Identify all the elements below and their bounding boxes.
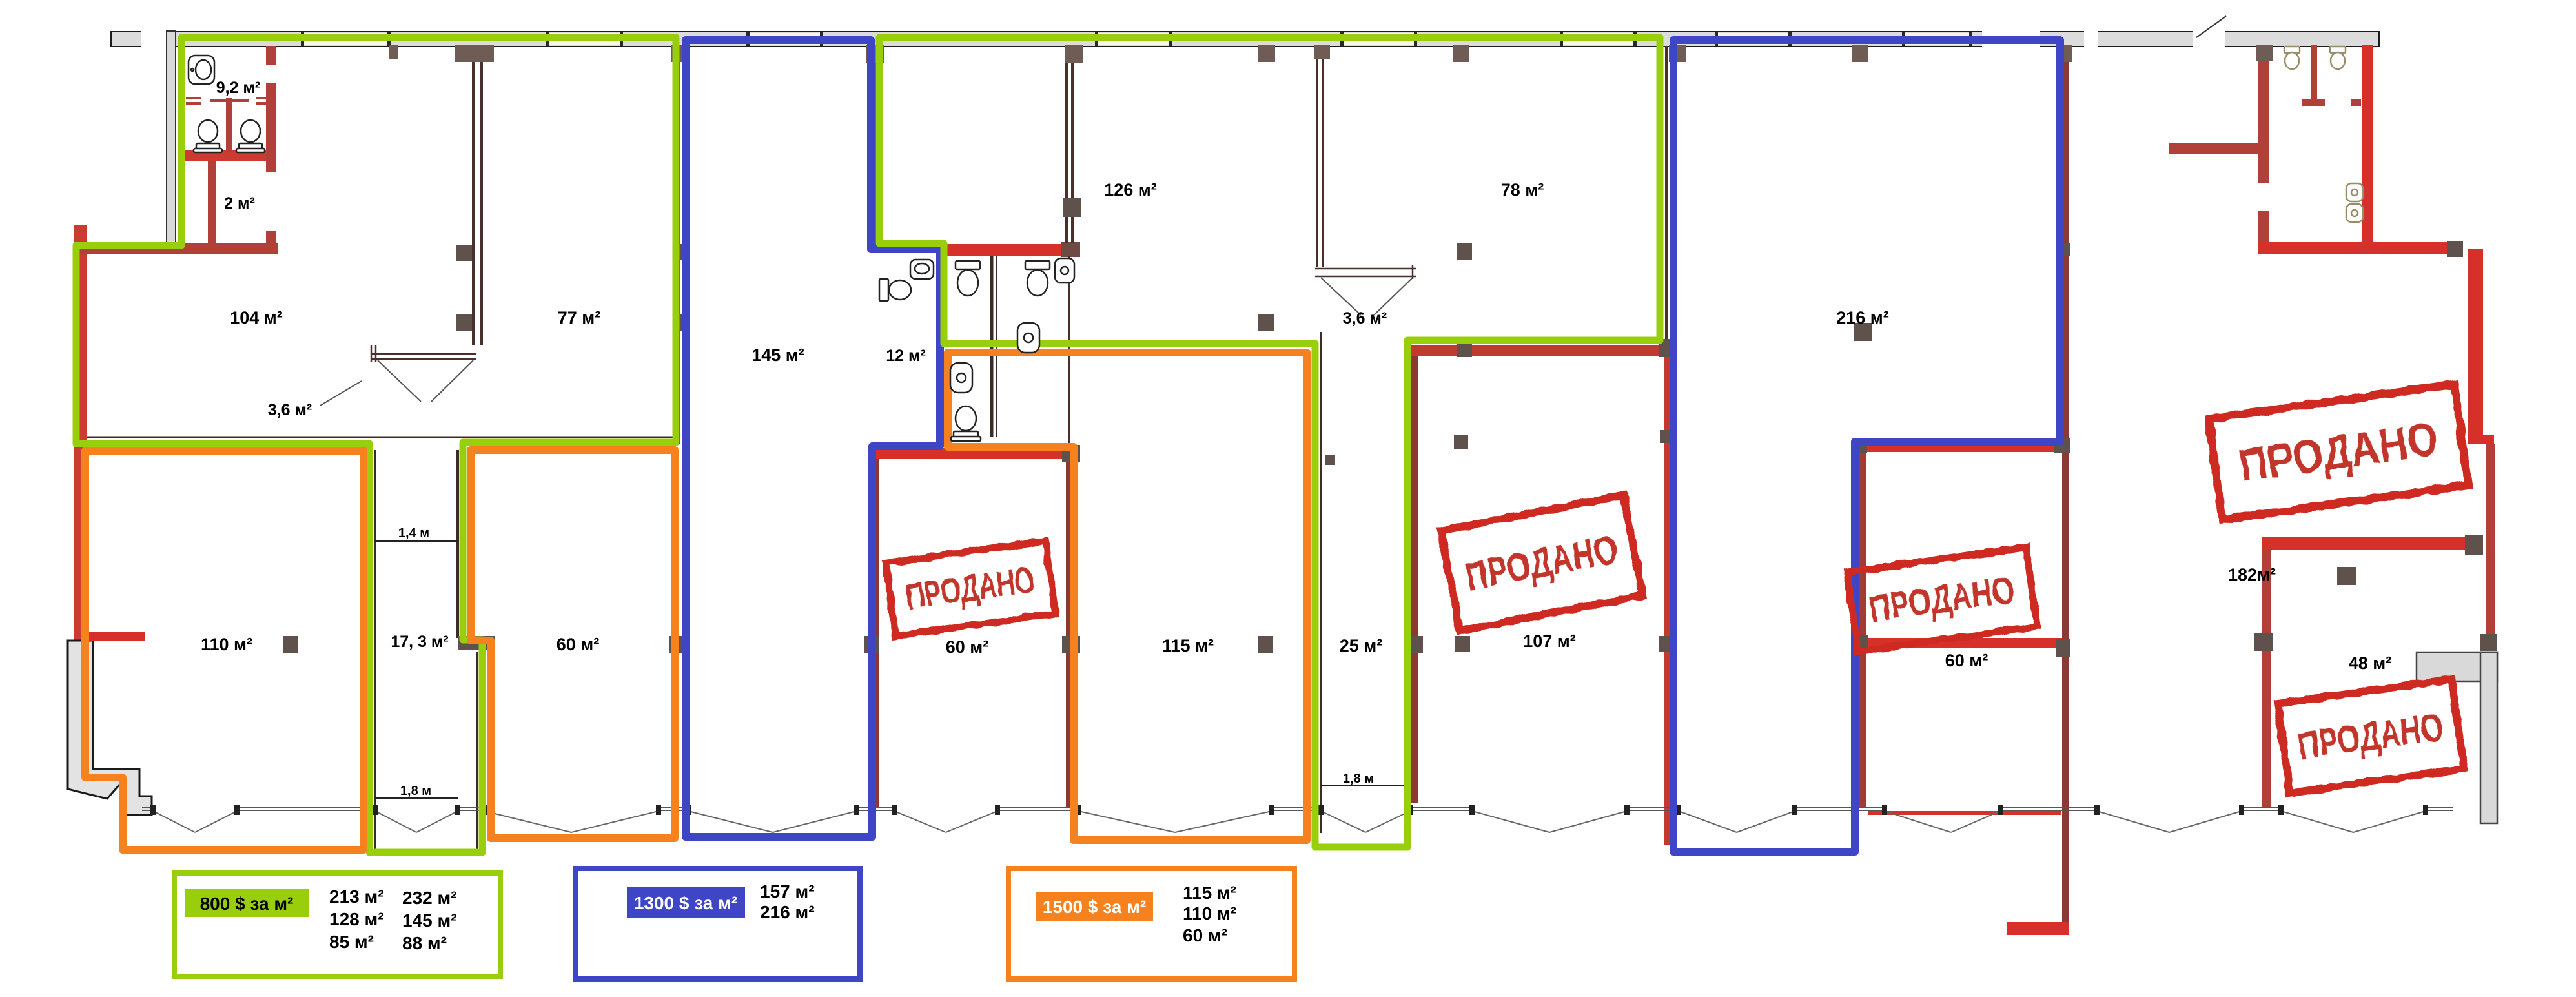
svg-text:2 м²: 2 м² <box>224 194 255 212</box>
svg-text:157 м²: 157 м² <box>760 881 815 901</box>
svg-text:85 м²: 85 м² <box>329 932 374 952</box>
svg-text:216 м²: 216 м² <box>1836 308 1889 327</box>
svg-text:88 м²: 88 м² <box>402 933 447 953</box>
svg-text:182м²: 182м² <box>2228 565 2276 584</box>
svg-text:145 м²: 145 м² <box>751 345 804 365</box>
svg-text:48 м²: 48 м² <box>2349 653 2392 673</box>
svg-text:3,6 м²: 3,6 м² <box>268 401 312 419</box>
svg-text:1,8 м: 1,8 м <box>1343 772 1374 786</box>
svg-text:126 м²: 126 м² <box>1104 180 1157 200</box>
svg-text:232 м²: 232 м² <box>402 888 457 908</box>
svg-text:115 м²: 115 м² <box>1162 636 1214 655</box>
svg-text:60 м²: 60 м² <box>946 637 989 657</box>
svg-text:1,8 м: 1,8 м <box>400 784 431 798</box>
svg-text:1,4 м: 1,4 м <box>398 526 429 540</box>
svg-text:800 $ за м²: 800 $ за м² <box>200 894 294 914</box>
svg-text:104 м²: 104 м² <box>230 308 283 327</box>
svg-text:60 м²: 60 м² <box>1945 651 1988 670</box>
svg-text:12 м²: 12 м² <box>886 347 926 365</box>
svg-text:1300 $ за м²: 1300 $ за м² <box>634 893 737 913</box>
svg-text:9,2 м²: 9,2 м² <box>216 79 261 97</box>
svg-text:25 м²: 25 м² <box>1340 636 1383 655</box>
svg-text:60 м²: 60 м² <box>1183 925 1227 945</box>
svg-text:78 м²: 78 м² <box>1501 180 1544 200</box>
svg-text:128 м²: 128 м² <box>329 909 384 929</box>
svg-text:213 м²: 213 м² <box>329 887 384 907</box>
svg-text:216 м²: 216 м² <box>760 902 815 922</box>
svg-text:3,6 м²: 3,6 м² <box>1343 309 1387 327</box>
svg-text:145 м²: 145 м² <box>402 910 457 930</box>
svg-text:77 м²: 77 м² <box>558 308 601 327</box>
svg-text:110 м²: 110 м² <box>1183 903 1236 923</box>
svg-text:107 м²: 107 м² <box>1523 632 1576 651</box>
svg-text:110 м²: 110 м² <box>201 635 252 654</box>
svg-text:60 м²: 60 м² <box>557 635 600 654</box>
svg-text:17, 3 м²: 17, 3 м² <box>391 633 448 651</box>
svg-text:1500 $ за м²: 1500 $ за м² <box>1043 897 1146 917</box>
svg-text:115 м²: 115 м² <box>1183 883 1236 903</box>
